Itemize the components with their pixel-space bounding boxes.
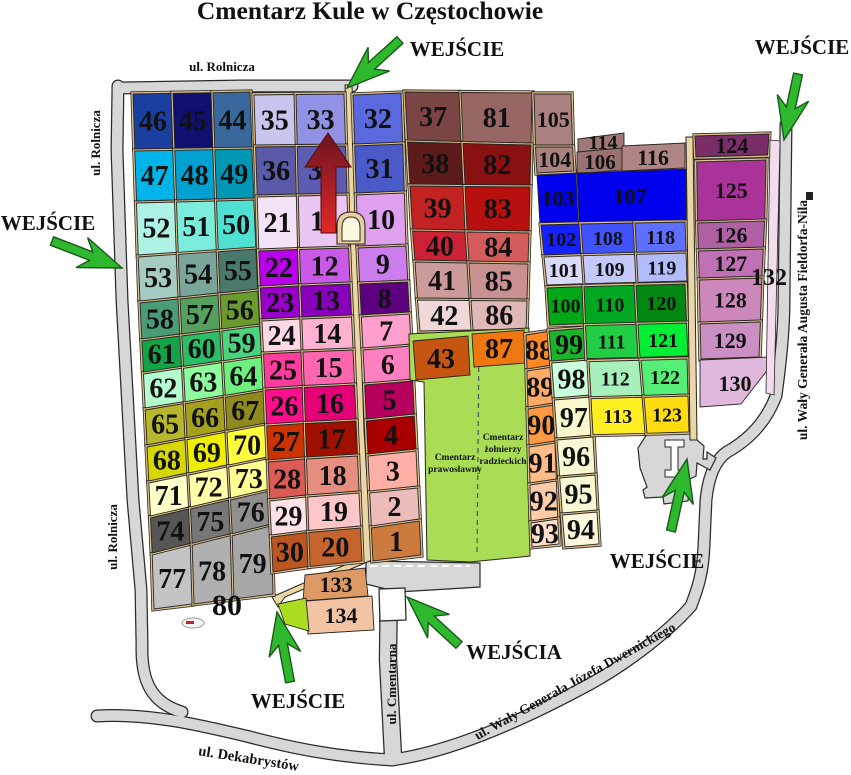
svg-text:77: 77 xyxy=(158,564,186,595)
svg-text:100: 100 xyxy=(551,296,581,318)
svg-text:37: 37 xyxy=(419,102,447,133)
svg-text:2: 2 xyxy=(388,492,402,523)
svg-text:86: 86 xyxy=(485,301,513,332)
svg-text:122: 122 xyxy=(650,367,680,389)
svg-text:60: 60 xyxy=(188,334,216,365)
svg-text:46: 46 xyxy=(139,107,167,138)
svg-text:28: 28 xyxy=(273,464,301,495)
svg-text:93: 93 xyxy=(531,519,559,550)
svg-text:10: 10 xyxy=(367,205,395,236)
svg-text:32: 32 xyxy=(364,104,392,135)
svg-text:76: 76 xyxy=(237,498,265,529)
svg-text:87: 87 xyxy=(485,334,513,365)
svg-text:7: 7 xyxy=(379,316,393,347)
svg-text:59: 59 xyxy=(228,329,256,360)
svg-text:84: 84 xyxy=(484,233,512,264)
svg-text:111: 111 xyxy=(598,331,626,353)
svg-text:105: 105 xyxy=(537,107,570,132)
svg-text:42: 42 xyxy=(430,301,458,332)
svg-text:90: 90 xyxy=(527,411,555,442)
svg-text:119: 119 xyxy=(647,257,676,279)
svg-text:110: 110 xyxy=(595,294,624,316)
svg-text:102: 102 xyxy=(546,229,576,251)
svg-text:41: 41 xyxy=(428,266,456,297)
svg-text:58: 58 xyxy=(146,304,174,335)
svg-text:WEJŚCIA: WEJŚCIA xyxy=(466,640,563,664)
svg-text:112: 112 xyxy=(601,368,630,390)
svg-text:96: 96 xyxy=(562,442,590,473)
svg-text:57: 57 xyxy=(186,300,214,331)
svg-text:124: 124 xyxy=(715,133,748,158)
svg-text:prawosławny: prawosławny xyxy=(428,465,482,475)
svg-text:5: 5 xyxy=(383,385,397,416)
svg-text:53: 53 xyxy=(144,263,172,294)
svg-text:66: 66 xyxy=(191,403,219,434)
svg-text:129: 129 xyxy=(714,328,747,353)
svg-text:ul. Wały Generała Augusta Fiel: ul. Wały Generała Augusta Fieldorfa-Nila xyxy=(795,200,810,440)
svg-text:WEJŚCIE: WEJŚCIE xyxy=(610,549,705,573)
svg-text:70: 70 xyxy=(233,430,261,461)
svg-text:14: 14 xyxy=(313,319,341,350)
svg-text:47: 47 xyxy=(141,161,169,192)
svg-text:94: 94 xyxy=(567,515,595,546)
svg-text:65: 65 xyxy=(151,410,179,441)
svg-text:127: 127 xyxy=(714,251,747,276)
svg-text:133: 133 xyxy=(320,572,353,597)
svg-text:8: 8 xyxy=(378,284,392,315)
svg-text:WEJŚCIE: WEJŚCIE xyxy=(1,211,96,235)
svg-text:103: 103 xyxy=(542,186,575,211)
svg-text:ul. Rolnicza: ul. Rolnicza xyxy=(105,504,120,570)
svg-text:9: 9 xyxy=(376,250,390,281)
svg-text:54: 54 xyxy=(184,260,212,291)
svg-text:62: 62 xyxy=(149,374,177,405)
svg-text:23: 23 xyxy=(266,288,294,319)
svg-text:109: 109 xyxy=(595,259,625,281)
svg-text:134: 134 xyxy=(325,603,358,628)
svg-text:63: 63 xyxy=(189,368,217,399)
svg-text:30: 30 xyxy=(276,538,304,569)
svg-text:83: 83 xyxy=(484,194,512,225)
svg-text:27: 27 xyxy=(272,427,300,458)
svg-text:38: 38 xyxy=(421,149,449,180)
svg-text:120: 120 xyxy=(646,293,676,315)
svg-text:132: 132 xyxy=(751,265,787,291)
svg-text:91: 91 xyxy=(529,449,557,480)
svg-text:ul. Rolnicza: ul. Rolnicza xyxy=(189,59,255,74)
svg-text:29: 29 xyxy=(274,501,302,532)
svg-text:81: 81 xyxy=(483,103,511,134)
svg-text:71: 71 xyxy=(155,481,183,512)
svg-text:Cmentarz: Cmentarz xyxy=(483,433,524,443)
svg-text:49: 49 xyxy=(220,159,248,190)
svg-text:56: 56 xyxy=(226,295,254,326)
svg-text:61: 61 xyxy=(148,339,176,370)
svg-text:WEJŚCIE: WEJŚCIE xyxy=(410,37,505,61)
svg-text:Cmentarz Kule w Częstochowie: Cmentarz Kule w Częstochowie xyxy=(197,0,543,25)
svg-text:22: 22 xyxy=(265,253,293,284)
svg-text:44: 44 xyxy=(218,105,246,136)
svg-text:39: 39 xyxy=(424,193,452,224)
svg-text:18: 18 xyxy=(319,461,347,492)
svg-text:67: 67 xyxy=(231,396,259,427)
svg-text:121: 121 xyxy=(648,330,678,352)
svg-text:95: 95 xyxy=(565,480,593,511)
svg-text:43: 43 xyxy=(427,344,455,375)
svg-text:Cmentarz: Cmentarz xyxy=(435,453,476,463)
svg-text:żołnierzy: żołnierzy xyxy=(485,445,522,455)
svg-text:ul. Rolnicza: ul. Rolnicza xyxy=(88,110,103,176)
svg-text:20: 20 xyxy=(321,533,349,564)
svg-text:128: 128 xyxy=(714,287,747,312)
svg-text:82: 82 xyxy=(483,150,511,181)
svg-text:98: 98 xyxy=(558,365,586,396)
svg-text:WEJŚCIE: WEJŚCIE xyxy=(755,35,850,59)
svg-text:15: 15 xyxy=(315,353,343,384)
svg-text:123: 123 xyxy=(652,404,682,426)
svg-text:1: 1 xyxy=(389,527,403,558)
svg-text:74: 74 xyxy=(156,516,184,547)
svg-text:25: 25 xyxy=(269,355,297,386)
svg-text:97: 97 xyxy=(560,403,588,434)
svg-text:radzieckich: radzieckich xyxy=(480,457,528,467)
svg-text:89: 89 xyxy=(526,373,554,404)
svg-text:101: 101 xyxy=(549,260,579,282)
svg-text:68: 68 xyxy=(153,446,181,477)
svg-text:55: 55 xyxy=(224,256,252,287)
svg-text:24: 24 xyxy=(268,321,296,352)
svg-text:17: 17 xyxy=(317,424,345,455)
svg-text:4: 4 xyxy=(384,421,398,452)
svg-text:51: 51 xyxy=(182,212,210,243)
svg-text:16: 16 xyxy=(316,389,344,420)
svg-text:31: 31 xyxy=(366,154,394,185)
svg-text:108: 108 xyxy=(593,228,623,250)
svg-text:12: 12 xyxy=(311,251,339,282)
svg-text:107: 107 xyxy=(614,184,647,209)
svg-text:125: 125 xyxy=(715,178,748,203)
svg-text:75: 75 xyxy=(196,507,224,538)
svg-text:79: 79 xyxy=(239,549,267,580)
svg-text:50: 50 xyxy=(222,210,250,241)
svg-text:106: 106 xyxy=(584,150,616,174)
svg-text:35: 35 xyxy=(261,105,289,136)
svg-text:126: 126 xyxy=(715,222,748,247)
svg-text:52: 52 xyxy=(142,214,170,245)
svg-text:WEJŚCIE: WEJŚCIE xyxy=(251,689,346,713)
svg-text:99: 99 xyxy=(555,330,583,361)
svg-text:104: 104 xyxy=(538,147,571,172)
svg-text:73: 73 xyxy=(235,464,263,495)
svg-text:85: 85 xyxy=(485,267,513,298)
svg-text:3: 3 xyxy=(386,457,400,488)
svg-text:40: 40 xyxy=(426,232,454,263)
svg-text:78: 78 xyxy=(198,557,226,588)
svg-text:69: 69 xyxy=(193,438,221,469)
svg-text:45: 45 xyxy=(179,106,207,137)
svg-text:118: 118 xyxy=(646,227,675,249)
svg-text:48: 48 xyxy=(181,160,209,191)
svg-text:130: 130 xyxy=(719,371,752,396)
svg-text:36: 36 xyxy=(262,156,290,187)
svg-text:19: 19 xyxy=(320,497,348,528)
svg-text:13: 13 xyxy=(312,286,340,317)
svg-text:26: 26 xyxy=(270,391,298,422)
svg-text:92: 92 xyxy=(530,487,558,518)
svg-text:ul. Cmentarna: ul. Cmentarna xyxy=(384,643,399,724)
svg-text:80: 80 xyxy=(212,589,242,622)
svg-text:6: 6 xyxy=(381,350,395,381)
svg-text:64: 64 xyxy=(229,362,257,393)
svg-text:116: 116 xyxy=(637,145,669,170)
svg-text:72: 72 xyxy=(195,472,223,503)
svg-text:21: 21 xyxy=(263,208,291,239)
svg-text:33: 33 xyxy=(307,105,335,136)
svg-text:113: 113 xyxy=(603,406,632,428)
